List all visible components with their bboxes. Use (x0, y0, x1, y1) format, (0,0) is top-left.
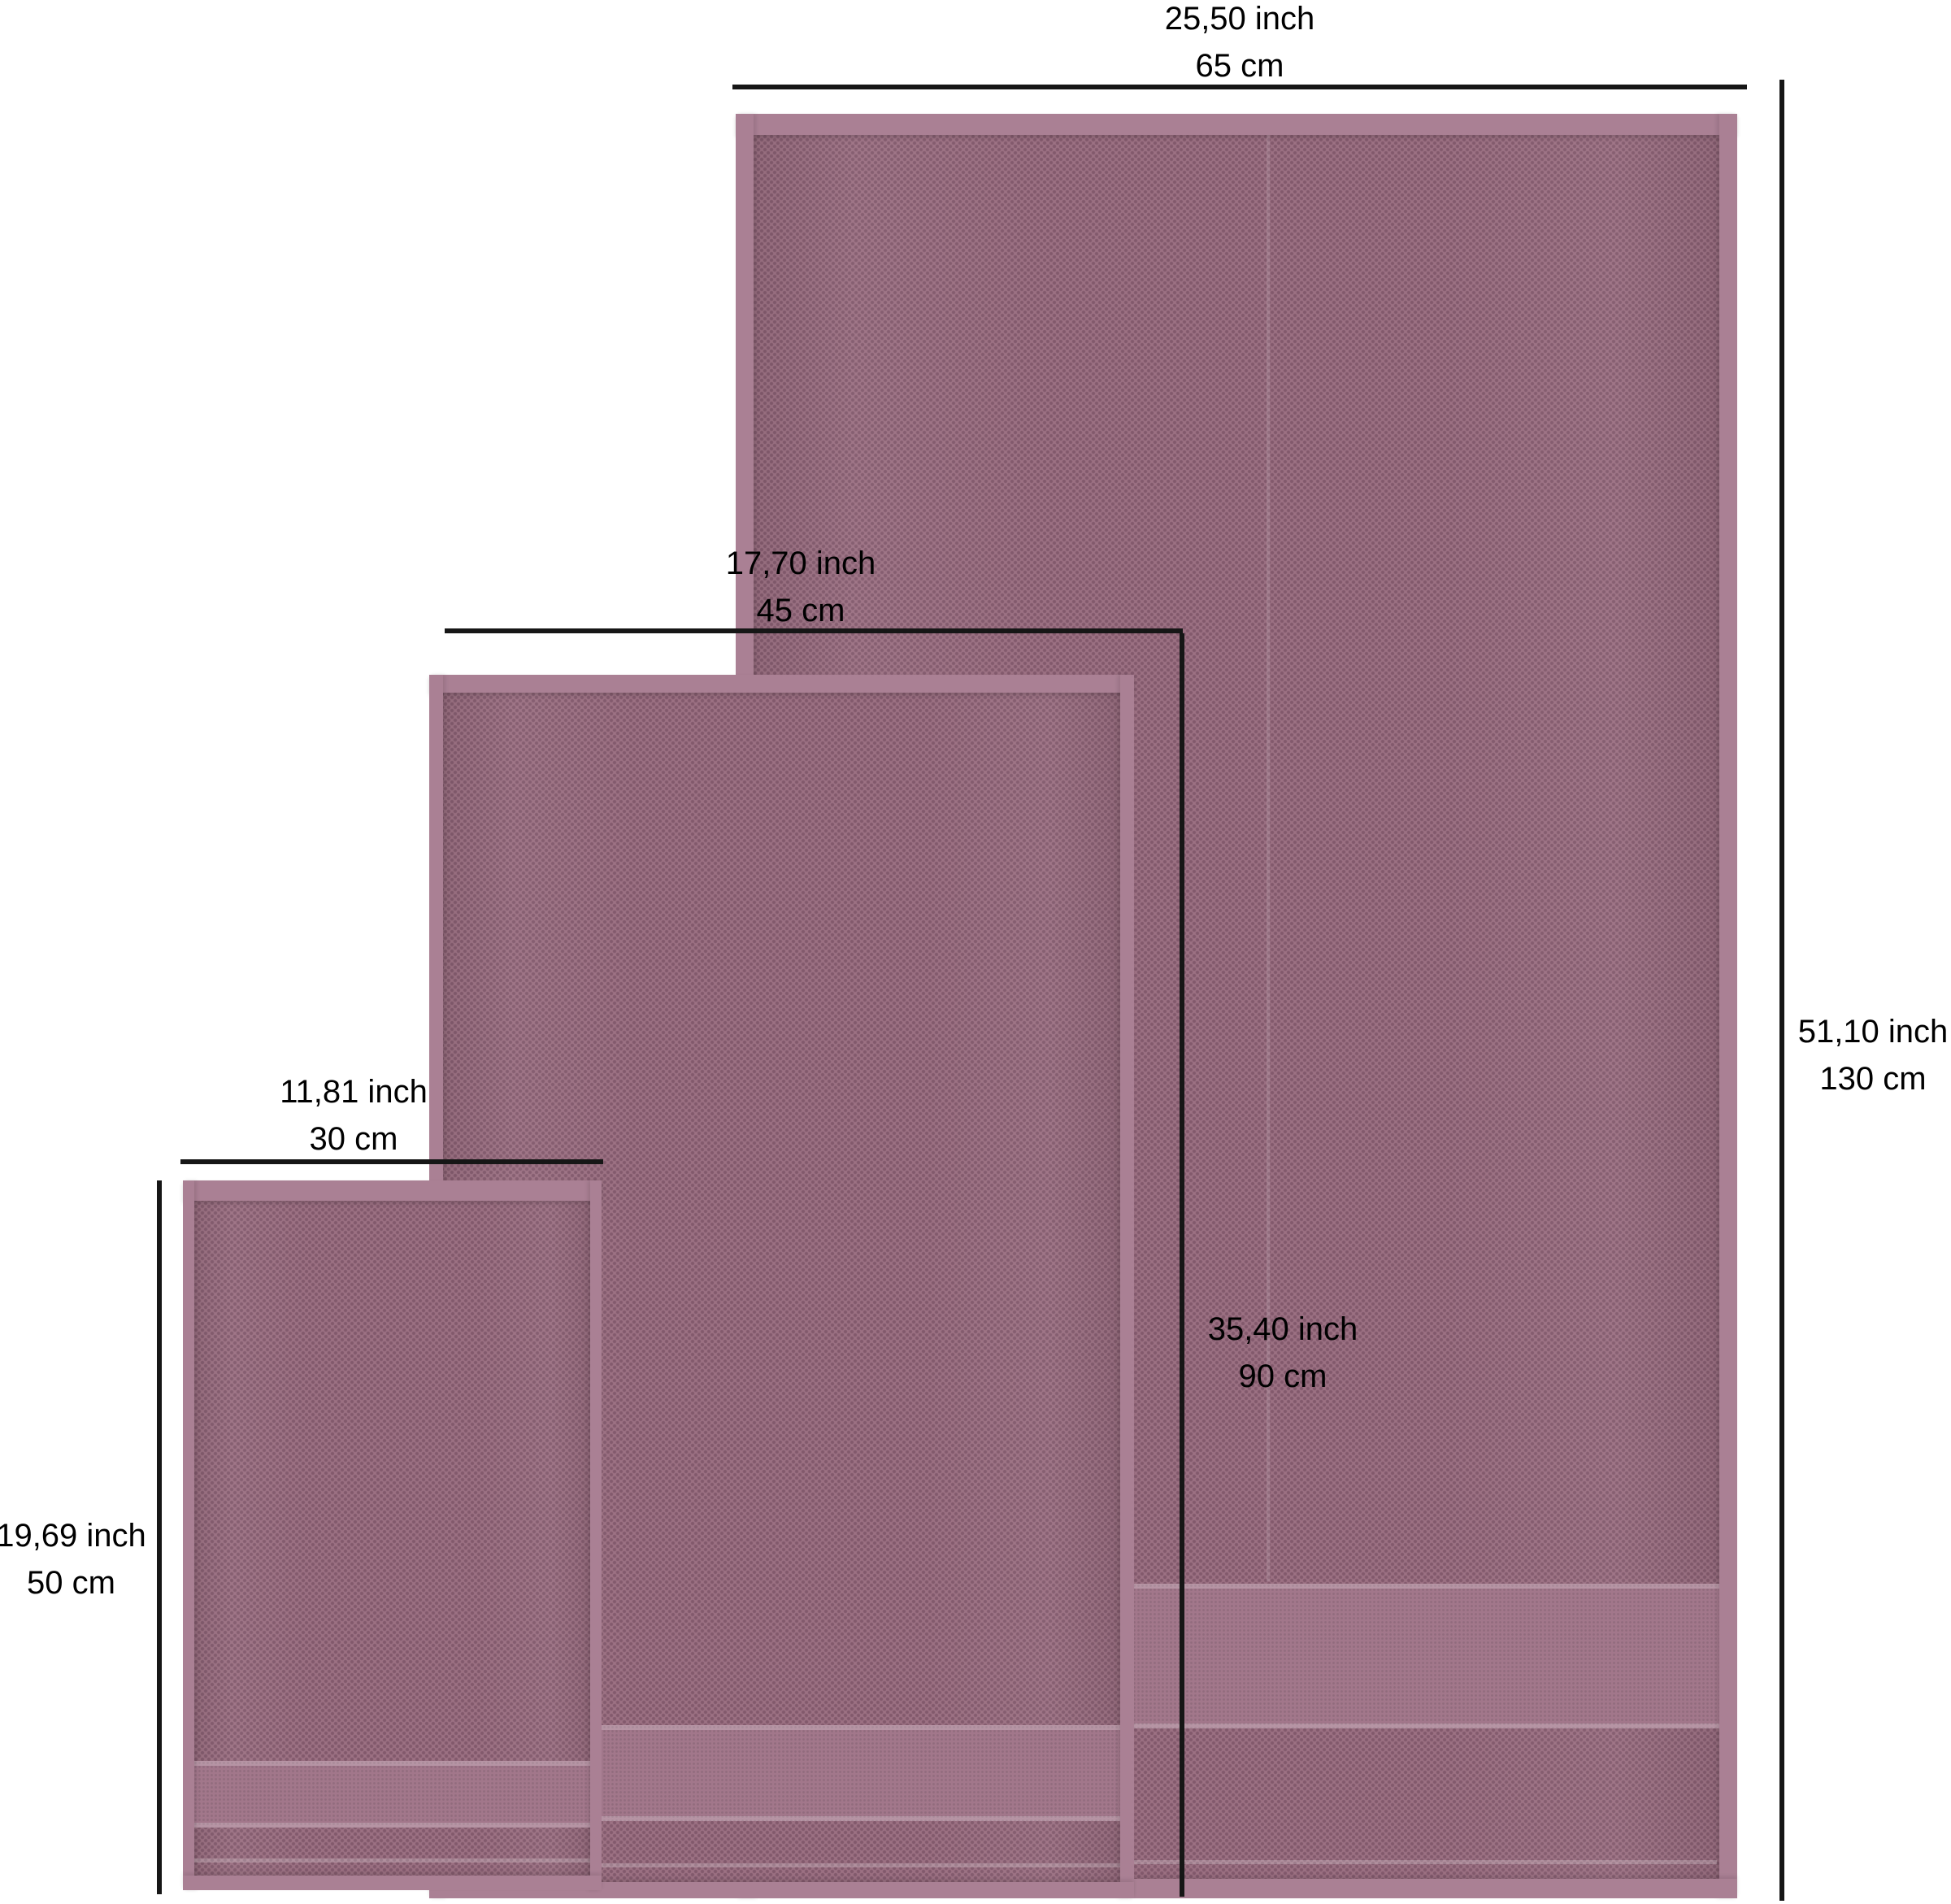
towel-small-border-band (185, 1761, 599, 1828)
medium-width-label: 17,70 inch 45 cm (638, 540, 963, 634)
height-dimension-line-large (1779, 80, 1784, 1901)
large-height-label: 51,10 inch 130 cm (1795, 1008, 1951, 1102)
small-width-label-inch: 11,81 inch (191, 1068, 516, 1115)
small-height-label-inch: 19,69 inch (0, 1512, 146, 1559)
height-dimension-line-medium (1180, 633, 1184, 1897)
medium-width-label-cm: 45 cm (638, 587, 963, 634)
towel-large-hem-right (1719, 114, 1737, 1898)
small-width-label: 11,81 inch 30 cm (191, 1068, 516, 1163)
towel-small-bottom-seam (191, 1858, 593, 1863)
towel-large-hem-top (736, 114, 1737, 135)
towel-small-hem-left (183, 1180, 194, 1890)
medium-height-label-inch: 35,40 inch (1185, 1306, 1380, 1353)
large-width-label-cm: 65 cm (1077, 42, 1402, 89)
large-height-label-inch: 51,10 inch (1795, 1008, 1951, 1055)
large-width-label: 25,50 inch 65 cm (1077, 0, 1402, 89)
towel-medium-hem-right (1120, 675, 1134, 1898)
towel-small-hem-bottom (183, 1876, 602, 1890)
medium-width-label-inch: 17,70 inch (638, 540, 963, 587)
small-width-label-cm: 30 cm (191, 1115, 516, 1163)
towel-small-hem-right (590, 1180, 602, 1890)
towel-medium-hem-top (429, 675, 1134, 693)
towel-small-hem-top (183, 1180, 602, 1201)
medium-height-label-cm: 90 cm (1185, 1353, 1380, 1400)
large-height-label-cm: 130 cm (1795, 1055, 1951, 1102)
small-height-label: 19,69 inch 50 cm (0, 1512, 146, 1606)
towel-size-comparison-diagram: 25,50 inch 65 cm 51,10 inch 130 cm 17,70… (0, 0, 1951, 1904)
small-height-label-cm: 50 cm (0, 1559, 146, 1606)
medium-height-label: 35,40 inch 90 cm (1185, 1306, 1380, 1400)
large-width-label-inch: 25,50 inch (1077, 0, 1402, 42)
towel-small (183, 1180, 602, 1890)
height-dimension-line-small (157, 1180, 162, 1894)
